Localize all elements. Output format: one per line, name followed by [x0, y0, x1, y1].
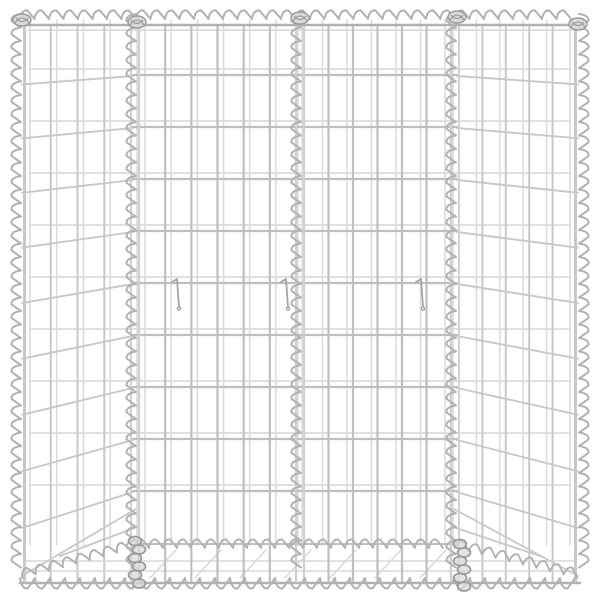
- bottom-knot-coil: [133, 562, 146, 571]
- bottom-knot-coil: [454, 574, 467, 583]
- bottom-knot-coil: [454, 540, 467, 549]
- side-sloped-wire-right: [457, 128, 578, 138]
- side-sloped-wire-right: [457, 440, 578, 471]
- top-knot: [291, 12, 309, 24]
- spiral-seams: [11, 10, 588, 588]
- spacer-hook-eye: [421, 307, 424, 310]
- gabion-basket-illustration: [0, 0, 600, 600]
- top-knot: [13, 14, 31, 26]
- top-knot: [569, 18, 587, 30]
- floor-diagonal-wire: [150, 550, 176, 578]
- bottom-knot-coil: [133, 545, 146, 554]
- bottom-knot-coil: [458, 565, 471, 574]
- side-sloped-wire-right: [457, 388, 578, 415]
- side-sloped-wire-right: [457, 180, 578, 193]
- bottom-knot-coil: [458, 582, 471, 591]
- side-sloped-wire-right: [457, 336, 578, 359]
- side-sloped-wire-right: [457, 284, 578, 303]
- spacer-hook-eye: [286, 307, 289, 310]
- bottom-knot-coil: [129, 571, 142, 580]
- bottom-knot-coil: [129, 554, 142, 563]
- vertical-spiral: [11, 14, 21, 568]
- vertical-spiral: [579, 14, 589, 568]
- floor-diagonal-wire: [375, 550, 401, 578]
- bottom-knot-coil: [133, 579, 146, 588]
- top-knot: [128, 16, 146, 28]
- product-photo: [0, 0, 600, 600]
- side-sloped-wire-right: [457, 76, 578, 84]
- side-sloped-wire-right: [457, 492, 578, 528]
- bottom-knot-coil: [129, 537, 142, 546]
- side-sloped-wire-right: [457, 232, 578, 248]
- spacer-hook-eye: [177, 307, 180, 310]
- floor-edge-spiral: [22, 539, 577, 578]
- floor-corner-diagonal: [22, 509, 136, 576]
- bottom-knot-coil: [458, 548, 471, 557]
- bottom-knot-coil: [454, 557, 467, 566]
- top-knot: [448, 11, 466, 23]
- floor-diagonal-wire: [420, 550, 446, 578]
